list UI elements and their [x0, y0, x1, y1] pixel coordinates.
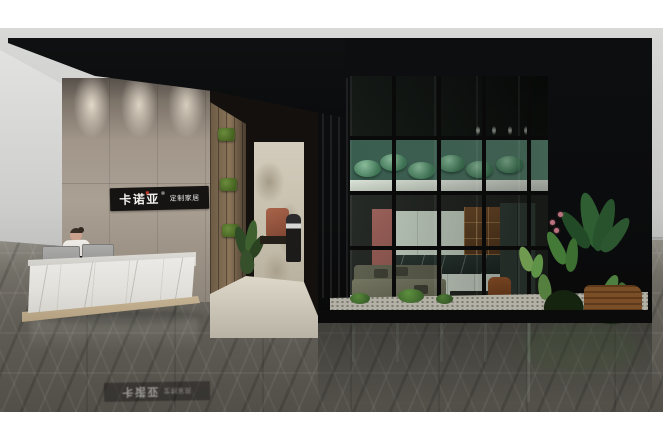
glass-mullion — [437, 76, 441, 300]
glass-floor-reflection — [352, 322, 546, 362]
brand-sign-sub-text: 定制家居 — [170, 195, 200, 203]
concrete-panel-joint — [62, 183, 210, 184]
receptionist-hair-bun — [78, 227, 84, 233]
brand-sign-main-text: 卡诺亚 — [119, 192, 160, 205]
display-figure — [286, 214, 301, 262]
shrub — [398, 289, 424, 303]
brand-sign: 卡诺亚 ® 定制家居 — [110, 186, 210, 211]
glass-transom — [350, 136, 548, 140]
pink-flower — [558, 212, 563, 217]
glass-mullion — [392, 76, 396, 300]
exhibit-box-sill — [318, 310, 652, 323]
pink-flower — [550, 220, 555, 225]
booth-side-wall — [0, 50, 62, 246]
pink-flower — [554, 228, 559, 233]
shrub — [350, 293, 370, 304]
shrub — [436, 294, 453, 304]
moss-panel — [218, 128, 235, 141]
brand-sign-reflection-sub: 定制家居 — [164, 387, 192, 394]
light-streak-reflection — [527, 322, 530, 402]
showroom-scene: 卡诺亚 定制家居 卡诺亚 ® 定制家居 — [0, 28, 663, 412]
brand-sign-reflection-main: 卡诺亚 — [122, 386, 160, 398]
registered-trademark-icon: ® — [161, 191, 166, 197]
moss-panel — [220, 178, 237, 191]
corridor — [210, 90, 318, 338]
brand-sign-red-accent — [146, 191, 149, 194]
glass-mullion — [482, 76, 486, 300]
brand-sign-reflection: 卡诺亚 定制家居 — [104, 381, 210, 402]
showroom-render-page: 卡诺亚 定制家居 卡诺亚 ® 定制家居 — [0, 0, 663, 436]
